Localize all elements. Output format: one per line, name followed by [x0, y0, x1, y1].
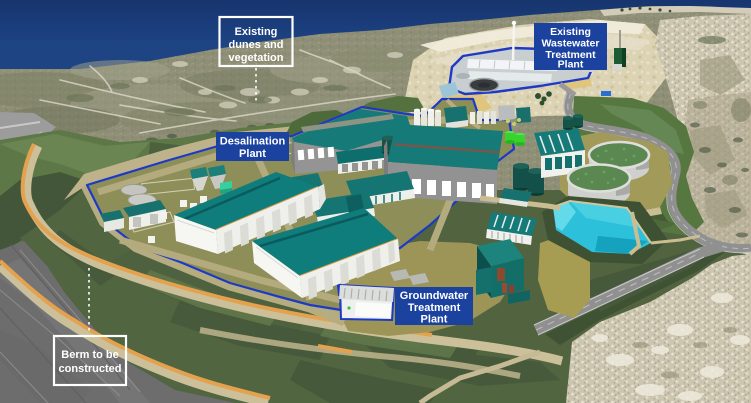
svg-text:Plant: Plant: [239, 148, 266, 160]
svg-text:Wastewater: Wastewater: [542, 38, 600, 50]
svg-text:Berm to be: Berm to be: [61, 349, 118, 361]
svg-text:dunes and: dunes and: [228, 39, 283, 51]
svg-text:Existing: Existing: [550, 26, 591, 38]
svg-text:constructed: constructed: [59, 363, 122, 375]
svg-text:Plant: Plant: [558, 59, 584, 71]
svg-text:Plant: Plant: [421, 314, 448, 326]
svg-text:Groundwater: Groundwater: [400, 290, 469, 302]
svg-text:Desalination: Desalination: [220, 136, 286, 148]
svg-text:Treatment: Treatment: [408, 302, 461, 314]
svg-text:vegetation: vegetation: [228, 52, 283, 64]
svg-text:Existing: Existing: [235, 26, 278, 38]
